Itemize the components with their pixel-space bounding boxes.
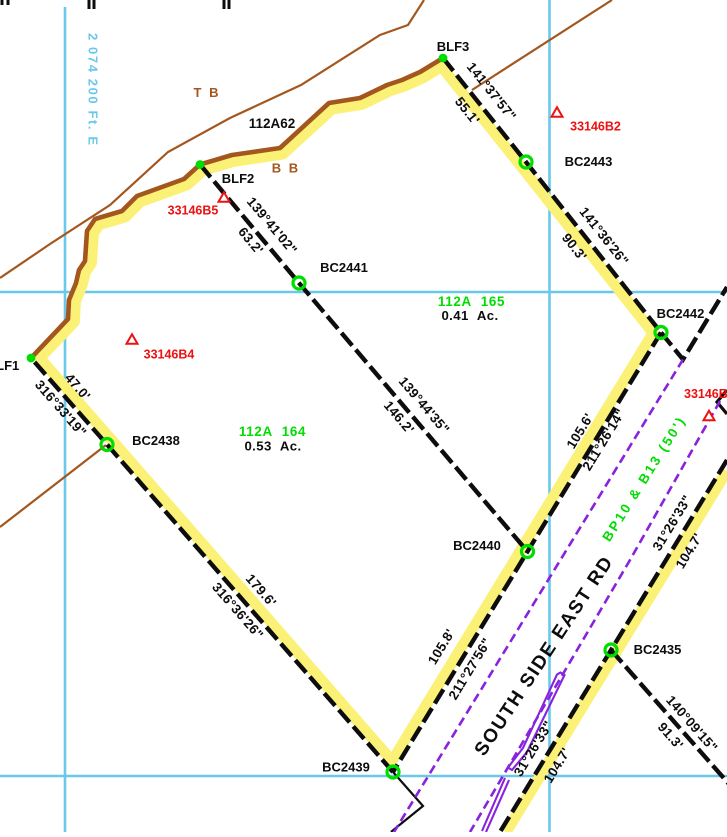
svg-text:BLF2: BLF2 bbox=[222, 171, 255, 186]
svg-text:BC2435: BC2435 bbox=[634, 642, 682, 657]
svg-text:BC2439: BC2439 bbox=[322, 760, 370, 775]
svg-text:B B: B B bbox=[272, 161, 300, 176]
svg-text:112A 164: 112A 164 bbox=[239, 424, 306, 439]
svg-text:BC2441: BC2441 bbox=[320, 260, 368, 275]
svg-text:2 074 200 Ft. E: 2 074 200 Ft. E bbox=[86, 33, 101, 147]
svg-text:T B: T B bbox=[194, 85, 221, 100]
svg-text:BLF3: BLF3 bbox=[437, 39, 470, 54]
svg-text:BLF1: BLF1 bbox=[0, 358, 19, 373]
svg-text:BC2443: BC2443 bbox=[565, 154, 613, 169]
svg-text:33146B2: 33146B2 bbox=[570, 120, 621, 134]
svg-text:33146B5: 33146B5 bbox=[168, 204, 219, 218]
svg-text:BC2440: BC2440 bbox=[453, 538, 501, 553]
svg-text:BC2442: BC2442 bbox=[657, 306, 705, 321]
svg-text:BC2438: BC2438 bbox=[132, 433, 180, 448]
svg-text:112A62: 112A62 bbox=[249, 116, 296, 131]
svg-text:0.53 Ac.: 0.53 Ac. bbox=[244, 439, 301, 454]
svg-text:33146B4: 33146B4 bbox=[144, 348, 195, 362]
svg-text:112A 165: 112A 165 bbox=[438, 294, 505, 309]
svg-text:33146B3: 33146B3 bbox=[684, 387, 727, 401]
svg-text:0.41 Ac.: 0.41 Ac. bbox=[441, 308, 498, 323]
